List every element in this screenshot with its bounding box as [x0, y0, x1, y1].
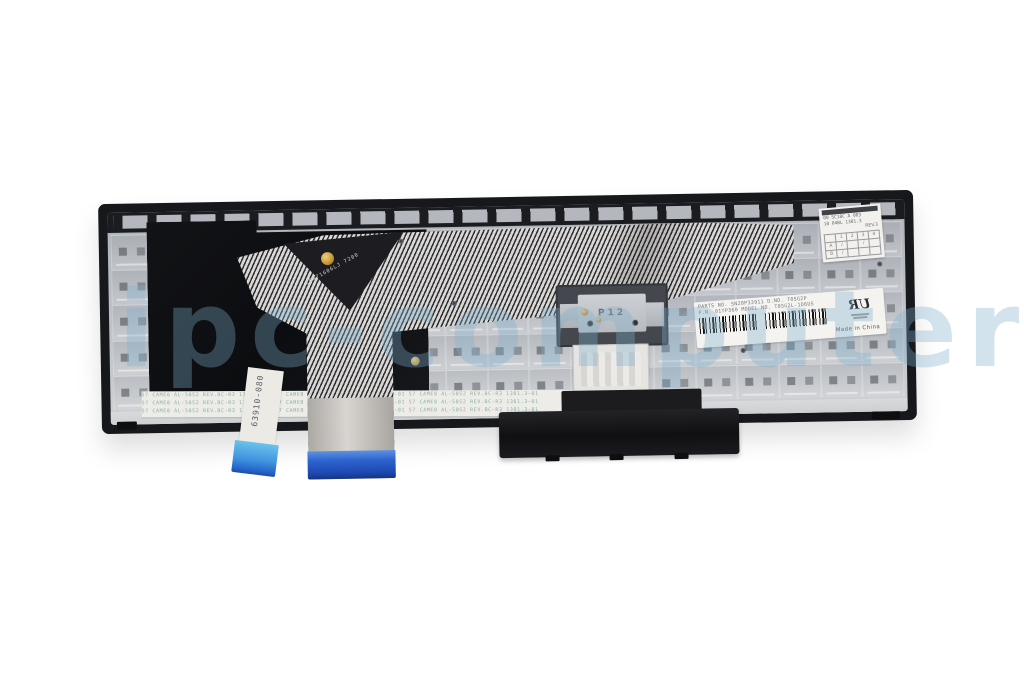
plate-screw-icon — [452, 301, 457, 306]
trackpoint-bracket: P12 — [578, 294, 647, 333]
key-cutout — [696, 365, 738, 401]
key-cutout — [819, 257, 861, 293]
key-cutout — [737, 364, 779, 400]
qc-grid-cell — [859, 247, 871, 256]
rubber-foot — [546, 455, 560, 461]
qc-grid-cell — [870, 246, 882, 255]
key-cutout — [779, 363, 821, 399]
qc-grid-cell: B — [826, 250, 838, 259]
ul-file-number-line — [853, 316, 867, 319]
plate-screw-icon — [741, 348, 746, 353]
bracket-screw-icon — [587, 321, 593, 327]
bracket-screw-icon — [632, 320, 638, 326]
keyboard-rear-panel: 57 CAME0 AL-5052 REV.BC-R3 1301.3-01 57 … — [98, 190, 917, 434]
key-cutout — [112, 340, 154, 376]
qc-grid-cell: / — [837, 249, 849, 258]
main-cable-lower-ribbon — [307, 397, 394, 454]
gold-pin-icon — [596, 317, 601, 322]
ul-recognized-icon: UR — [848, 297, 871, 314]
rubber-foot — [872, 411, 900, 419]
ul-recognized-mark: UR — [847, 293, 871, 321]
key-cutout — [862, 362, 904, 398]
qc-inspection-label: 00 5C18C A 003 10 04BL 1301.3 REV.3 1234… — [818, 203, 884, 262]
gold-pin-icon — [581, 309, 588, 316]
key-cutout — [111, 234, 153, 270]
made-in-text: Made in China — [836, 324, 881, 333]
rubber-foot — [609, 454, 623, 460]
key-cutout — [112, 305, 154, 341]
small-ribbon-blue-connector — [231, 440, 279, 477]
plate-screw-icon — [399, 239, 404, 244]
bottom-black-cover — [499, 408, 740, 458]
key-cutout — [445, 334, 487, 370]
rubber-foot — [674, 453, 688, 459]
key-cutout — [487, 333, 529, 369]
key-cutout — [111, 269, 153, 305]
qc-check-grid: 1234A//B/ — [824, 230, 882, 260]
rubber-foot — [117, 421, 137, 429]
bracket-stamp-code: P12 — [598, 308, 626, 318]
key-cutout — [821, 363, 863, 399]
qc-grid-cell — [848, 248, 860, 257]
main-cable-blue-connector — [307, 450, 395, 480]
plate-screw-icon — [877, 261, 882, 266]
product-photo-scene: 57 CAME0 AL-5052 REV.BC-R3 1301.3-01 57 … — [0, 0, 1024, 680]
